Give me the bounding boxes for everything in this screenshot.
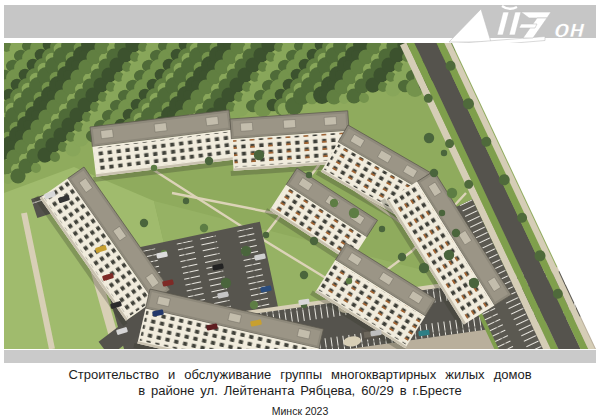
logo-text-tail: он [552, 14, 589, 42]
caption: Строительство и обслуживание группы мног… [0, 367, 600, 418]
logo-breve [502, 6, 517, 9]
caption-line-1: Строительство и обслуживание группы мног… [0, 367, 600, 383]
caption-year: Минск 2023 [0, 404, 600, 418]
logo-letter-i [497, 12, 509, 35]
caption-line-2: в районе ул. Лейтенанта Рябцева, 60/29 в… [0, 383, 600, 399]
logo-letter-z [521, 12, 551, 18]
logo-letter-i2 [509, 12, 521, 35]
slide-page: он [0, 0, 600, 420]
site-plan-rendering [4, 43, 596, 349]
footer-band [4, 350, 596, 363]
logo-letter-z-bar [519, 24, 537, 28]
logo-letter-a [449, 9, 491, 42]
